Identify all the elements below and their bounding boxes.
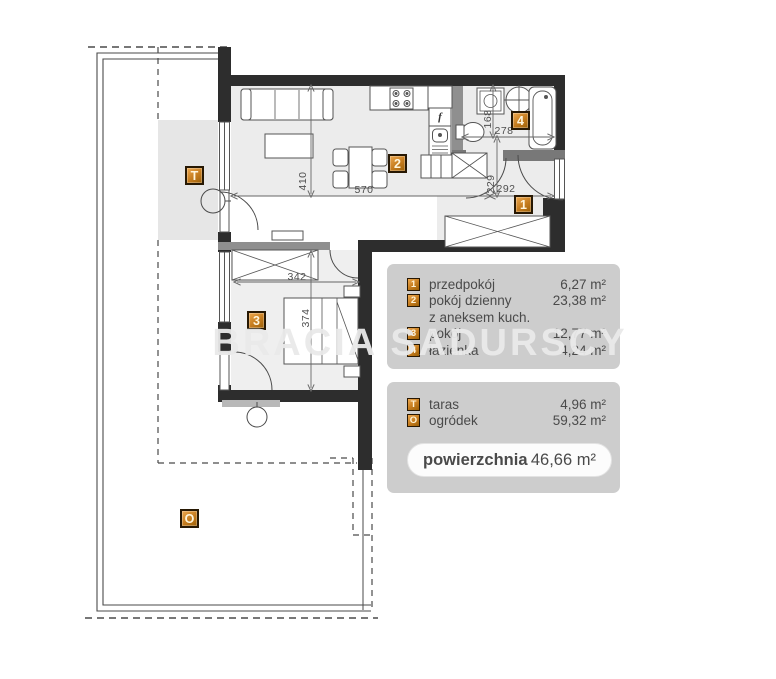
legend-room-name: ogródek	[429, 413, 553, 428]
legend-room-area: 23,38 m²	[553, 293, 606, 308]
dimension-label: 342	[287, 271, 306, 283]
legend-badge: 1	[407, 278, 420, 291]
total-area-pill: powierzchnia 46,66 m²	[407, 443, 612, 477]
legend-room-area: 4,96 m²	[560, 397, 606, 412]
sofa	[241, 89, 333, 120]
legend-row: 4 łazienka 4,24 m²	[407, 342, 606, 359]
coffee-table	[265, 134, 313, 158]
legend-room-area: 12,77 m²	[553, 326, 606, 341]
kitchen-sink	[429, 126, 451, 156]
dimension-label: 229	[485, 174, 497, 193]
floor-plan-page: 1 2 3 4 T O 570 410 342 374 292 229 278 …	[0, 0, 776, 679]
legend-badge: 4	[407, 344, 420, 357]
legend-room-area: 6,27 m²	[560, 277, 606, 292]
tv	[272, 231, 303, 240]
total-area-label: powierzchnia	[423, 451, 528, 470]
chair	[372, 149, 387, 166]
room-label-bathroom: 4	[511, 111, 530, 130]
legend-row: 1 przedpokój 6,27 m²	[407, 276, 606, 293]
legend-room-name: taras	[429, 397, 560, 412]
legend-row: 2 pokój dzienny 23,38 m²	[407, 293, 606, 310]
total-area-value: 46,66 m²	[531, 451, 596, 470]
legend-room-area: 4,24 m²	[560, 343, 606, 358]
toilet	[462, 123, 484, 142]
legend-room-area: 59,32 m²	[553, 413, 606, 428]
legend-row-continuation: z aneksem kuch.	[407, 309, 606, 326]
room-label-terrace: T	[185, 166, 204, 185]
legend-row: O ogródek 59,32 m²	[407, 413, 606, 430]
nightstand	[344, 286, 360, 297]
legend-badge: O	[407, 414, 420, 427]
legend-row: 3 pokój 12,77 m²	[407, 326, 606, 343]
legend-badge: 2	[407, 294, 420, 307]
chair	[333, 171, 348, 188]
room-label-hall: 1	[514, 195, 533, 214]
dimension-label: 292	[496, 183, 515, 195]
legend-room-name: pokój	[429, 326, 553, 341]
legend-room-name: pokój dzienny	[429, 293, 553, 308]
legend-row: T taras 4,96 m²	[407, 396, 606, 413]
garden-drain	[247, 407, 267, 427]
dining-table	[349, 147, 372, 188]
legend-room-name: przedpokój	[429, 277, 560, 292]
dimension-label: 410	[297, 171, 309, 190]
legend-room-name: z aneksem kuch.	[429, 310, 606, 325]
chair	[333, 149, 348, 166]
hall-wardrobe	[445, 216, 550, 247]
boiler-icon: f	[438, 111, 442, 123]
room-label-bedroom: 3	[247, 311, 266, 330]
legend-badge: T	[407, 398, 420, 411]
legend-rooms-panel: 1 przedpokój 6,27 m² 2 pokój dzienny 23,…	[387, 264, 620, 369]
legend-outdoor-panel: T taras 4,96 m² O ogródek 59,32 m² powie…	[387, 382, 620, 493]
kitchen-cabinet	[421, 155, 452, 178]
room-label-garden: O	[180, 509, 199, 528]
legend-badge: 3	[407, 327, 420, 340]
room-label-living: 2	[388, 154, 407, 173]
dimension-label: 168	[482, 109, 494, 128]
chair	[372, 171, 387, 188]
dimension-label: 374	[300, 308, 312, 327]
nightstand	[344, 366, 360, 377]
legend-room-name: łazienka	[429, 343, 560, 358]
bed	[284, 298, 358, 364]
dimension-label: 570	[354, 184, 373, 196]
